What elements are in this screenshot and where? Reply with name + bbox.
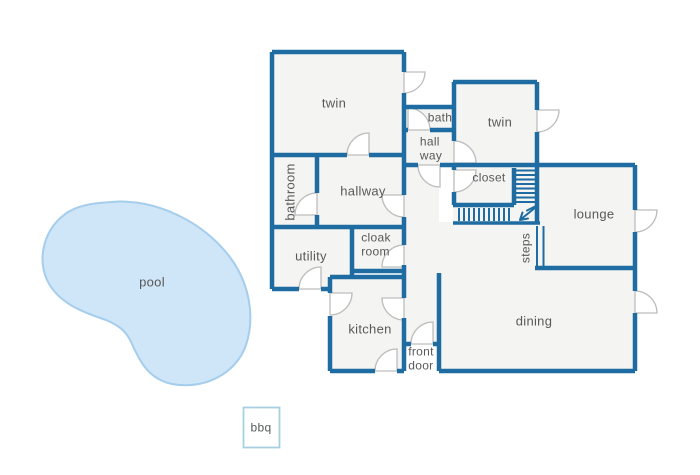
room-label-front-door: front door — [408, 346, 434, 373]
room-label-twin2: twin — [488, 115, 512, 129]
room-label-kitchen: kitchen — [348, 322, 391, 336]
room-label-closet: closet — [472, 171, 505, 185]
room-label-dining: dining — [516, 314, 553, 328]
outdoor-label-pool: pool — [139, 275, 165, 289]
room-label-lounge: lounge — [574, 207, 615, 221]
door-arc-lounge-exterior — [635, 210, 657, 232]
door-arc-twin1-exterior — [404, 72, 425, 93]
floor-plan-canvas: twin bath twin hall way bathroom hallway… — [0, 0, 700, 475]
door-arc-dining-exterior — [635, 291, 657, 313]
room-label-utility: utility — [295, 249, 327, 263]
room-label-bathroom: bathroom — [283, 163, 297, 220]
pool-shape — [43, 202, 251, 386]
outdoor-label-bbq: bbq — [251, 421, 272, 435]
room-label-steps: steps — [519, 233, 533, 263]
room-label-hallway: hallway — [340, 184, 385, 198]
floor-plan-drawing — [0, 0, 700, 475]
room-label-bath: bath — [428, 111, 453, 125]
door-arc-twin2-exterior — [537, 110, 559, 132]
room-label-cloak-room: cloak room — [361, 232, 391, 259]
room-label-hall-way: hall way — [420, 136, 442, 163]
room-label-twin1: twin — [322, 96, 346, 110]
